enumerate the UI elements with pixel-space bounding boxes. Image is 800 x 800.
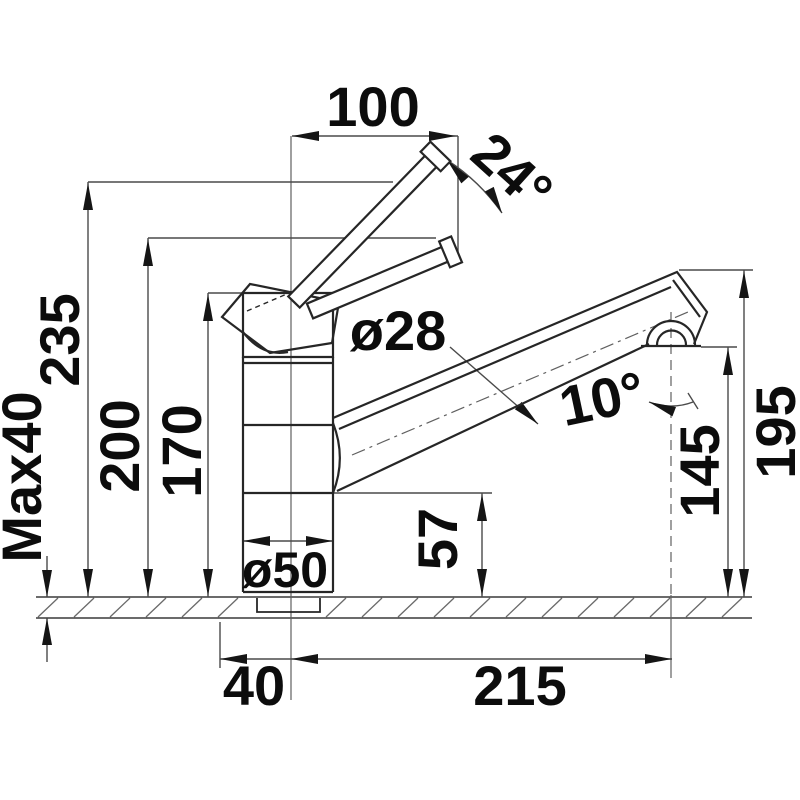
faucet-dimension-drawing: 100 24° 235 200 170 Max40 ø28 10° 145 19… (0, 0, 800, 800)
dim-label-lever-height: 200 (92, 399, 148, 492)
dim-label-spout-reach: 215 (473, 658, 566, 714)
countertop-lines (36, 597, 752, 618)
dim-label-total-height: 235 (32, 293, 88, 386)
dim-label-spout-tube-diameter: ø28 (350, 303, 447, 359)
dim-label-aerator-height: 145 (672, 424, 728, 517)
dim-label-spout-height: 195 (748, 385, 800, 478)
dim-label-base-height: 57 (410, 508, 466, 570)
mounting-shank (257, 598, 320, 612)
lever-cap (222, 284, 339, 353)
dim-label-lever-width: 100 (326, 79, 419, 135)
dim-label-body-height: 170 (154, 404, 210, 497)
countertop-hatch (38, 598, 742, 617)
dim-label-max-mounting-thickness: Max40 (0, 391, 50, 562)
dim-label-base-diameter: ø50 (242, 545, 328, 595)
dim-label-hole-offset: 40 (223, 658, 285, 714)
